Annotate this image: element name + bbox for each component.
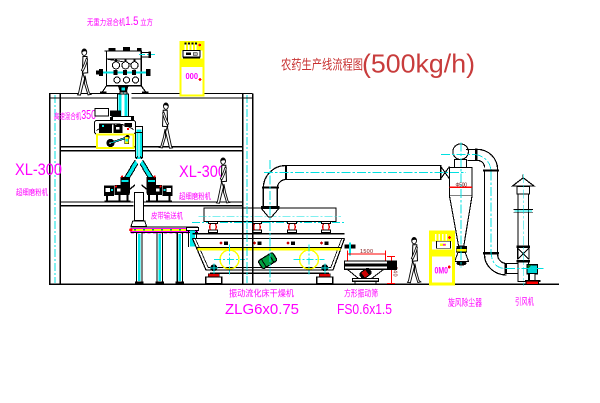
svg-text:0M0: 0M0 (435, 266, 449, 276)
svg-text:ZLG6x0.75: ZLG6x0.75 (225, 301, 299, 318)
svg-text:方形振动筛: 方形振动筛 (344, 288, 378, 299)
svg-text:超细磨粉机: 超细磨粉机 (16, 187, 48, 197)
svg-text:(500kg/h): (500kg/h) (362, 49, 475, 79)
svg-text:1500: 1500 (360, 249, 373, 255)
svg-text:振动流化床干燥机: 振动流化床干燥机 (229, 288, 294, 299)
svg-text:XL-300: XL-300 (179, 162, 226, 181)
svg-text:农药生产线流程图: 农药生产线流程图 (281, 58, 363, 73)
svg-text:无重力混合机1.5 立方: 无重力混合机1.5 立方 (87, 14, 153, 28)
svg-text:000: 000 (186, 71, 199, 81)
svg-text:XL-300: XL-300 (15, 160, 62, 179)
svg-text:引风机: 引风机 (515, 296, 534, 308)
svg-text:旋风除尘器: 旋风除尘器 (448, 297, 482, 309)
svg-text:FS0.6x1.5: FS0.6x1.5 (337, 301, 392, 318)
svg-text:皮带输送机: 皮带输送机 (151, 211, 183, 221)
svg-text:超细磨粉机: 超细磨粉机 (179, 191, 211, 201)
